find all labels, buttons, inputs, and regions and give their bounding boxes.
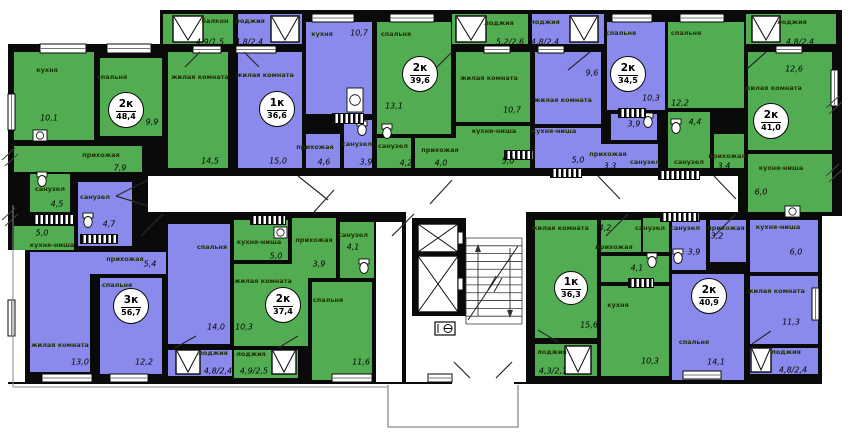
area-value: 4,2 — [599, 224, 612, 233]
corridor-area — [376, 222, 402, 382]
room-label: санузел — [674, 158, 704, 166]
room-label: жилая комната — [744, 84, 802, 92]
apartment-badge: 2к37,4 — [265, 287, 301, 323]
apartment-type: 2к — [699, 285, 719, 298]
apartment-badge: 2к34,5 — [610, 56, 646, 92]
vent-shaft-hatch — [32, 214, 74, 225]
room-label: спальня — [606, 29, 636, 37]
room-label: кухня-ниша — [532, 127, 577, 135]
room-label: кухня-ниша — [759, 164, 804, 172]
vent-shaft-hatch — [618, 108, 646, 118]
area-value: 6,0 — [755, 188, 768, 197]
apartment-area: 36,3 — [561, 290, 581, 300]
room — [168, 52, 228, 168]
area-value: 3,9 — [628, 120, 641, 129]
apartment-area: 40,9 — [699, 298, 719, 308]
apartment-badge: 1к36,6 — [259, 91, 295, 127]
room-label: лоджия — [198, 349, 228, 357]
apartment-area: 48,4 — [116, 112, 136, 122]
vent-shaft-hatch — [332, 113, 364, 124]
vent-shaft-hatch — [660, 212, 700, 222]
area-value: 13,0 — [71, 358, 89, 367]
apartment-type: 2к — [273, 294, 293, 307]
apartment-badge: 2к40,9 — [691, 278, 727, 314]
area-value: 14,0 — [207, 323, 225, 332]
room-label: лоджия — [537, 348, 567, 356]
room-label: кухня-ниша — [30, 241, 75, 249]
apartment-area: 34,5 — [618, 76, 638, 86]
apartment-type: 2к — [761, 110, 781, 123]
room-label: лоджия — [484, 19, 514, 27]
vent-shaft-hatch — [80, 234, 118, 244]
room-label: лоджия — [236, 350, 266, 358]
room-label: санузел — [338, 231, 368, 239]
area-value: 7,9 — [114, 164, 127, 173]
area-value: 4,4 — [689, 118, 702, 127]
room-label: спальня — [97, 73, 127, 81]
apartment-badge: 2к41,0 — [753, 103, 789, 139]
room-label: санузел — [670, 224, 700, 232]
area-value: 4,6 — [318, 158, 331, 167]
room-label: прихожая — [421, 146, 458, 154]
apartment-area: 36,6 — [267, 111, 287, 121]
area-value: 9,9 — [146, 118, 159, 127]
room-label: кухня-ниша — [472, 127, 517, 135]
corridor-area — [822, 216, 850, 384]
area-value: 3,9 — [360, 158, 373, 167]
vent-shaft-hatch — [628, 278, 654, 288]
room-label: лоджия — [771, 348, 801, 356]
area-value: 4,8/2,4 — [786, 38, 814, 47]
area-value: 5,0 — [270, 252, 283, 261]
room-label: балкон — [201, 17, 228, 25]
area-value: 4,8/2,4 — [235, 38, 263, 47]
area-value: 3,9 — [688, 248, 701, 257]
area-value: 10,3 — [641, 357, 659, 366]
room — [30, 252, 90, 372]
room-label: спальня — [671, 29, 701, 37]
apartment-type: 3к — [121, 295, 141, 308]
room-label: спальня — [313, 296, 343, 304]
area-value: 11,3 — [782, 318, 800, 327]
area-value: 3,3 — [604, 162, 617, 171]
area-value: 10,1 — [40, 114, 58, 123]
room-label: прихожая — [595, 243, 632, 251]
room-label: санузел — [342, 140, 372, 148]
area-value: 12,2 — [135, 358, 153, 367]
apartment-type: 2к — [410, 63, 430, 76]
area-value: 4,1 — [631, 264, 644, 273]
room-label: санузел — [630, 158, 660, 166]
area-value: 4,0 — [435, 159, 448, 168]
room-label: кухня — [311, 30, 333, 38]
room-label: кухня-ниша — [756, 223, 801, 231]
room-label: прихожая — [82, 151, 119, 159]
area-value: 4,9/2,5 — [240, 367, 268, 376]
room-label: кухня-ниша — [237, 238, 282, 246]
room-label: жилая комната — [234, 277, 292, 285]
area-value: 12,2 — [671, 99, 689, 108]
area-value: 4,3/2,1 — [539, 367, 567, 376]
room-label: кухня — [607, 301, 629, 309]
area-value: 5,4 — [144, 260, 157, 269]
apartment-area: 39,6 — [410, 76, 430, 86]
apartment-type: 2к — [116, 99, 136, 112]
area-value: 5,0 — [502, 157, 515, 166]
apartment-badge: 3к56,7 — [113, 288, 149, 324]
room-label: жилая комната — [460, 74, 518, 82]
area-value: 4,9/1,5 — [196, 38, 224, 47]
apartment-badge: 2к39,6 — [402, 56, 438, 92]
area-value: 5,0 — [572, 156, 585, 165]
corridor-area — [406, 212, 526, 382]
room-label: санузел — [35, 185, 65, 193]
corridor-area — [452, 372, 514, 384]
area-value: 3,2 — [711, 232, 724, 241]
room-label: лоджия — [235, 17, 265, 25]
room-label: жилая комната — [236, 71, 294, 79]
area-value: 15,6 — [580, 321, 598, 330]
room-label: прихожая — [708, 152, 745, 160]
vent-shaft-hatch — [658, 170, 700, 180]
room-label: прихожая — [106, 255, 143, 263]
room-label: спальня — [381, 30, 411, 38]
area-value: 10,7 — [350, 29, 368, 38]
area-value: 5,2/2,6 — [496, 38, 524, 47]
room — [535, 52, 601, 124]
vent-shaft-hatch — [550, 168, 582, 178]
area-value: 9,6 — [586, 69, 599, 78]
area-value: 3,9 — [313, 260, 326, 269]
area-value: 12,6 — [785, 65, 803, 74]
area-value: 10,3 — [235, 323, 253, 332]
room-label: жилая комната — [531, 224, 589, 232]
area-value: 4,7 — [103, 220, 116, 229]
apartment-type: 2к — [618, 63, 638, 76]
apartment-area: 37,4 — [273, 307, 293, 317]
area-value: 4,2 — [400, 159, 413, 168]
room-label: лоджия — [777, 18, 807, 26]
corridor-area — [148, 176, 738, 212]
area-value: 4,1 — [347, 243, 360, 252]
area-value: 3,4 — [718, 162, 731, 171]
room-label: жилая комната — [31, 341, 89, 349]
room-label: лоджия — [530, 18, 560, 26]
area-value: 10,3 — [642, 94, 660, 103]
vent-shaft-hatch — [250, 215, 286, 225]
corridor-area — [8, 250, 25, 382]
room-label: спальня — [197, 243, 227, 251]
room — [292, 218, 336, 278]
room-label: прихожая — [589, 150, 626, 158]
area-value: 4,8/2,4 — [531, 38, 559, 47]
room-label: жилая комната — [171, 73, 229, 81]
apartment-badge: 2к48,4 — [108, 92, 144, 128]
area-value: 10,7 — [503, 106, 521, 115]
room — [748, 154, 832, 212]
floor-plan: кухняспальняжилая комнатаприхожаясанузел… — [0, 0, 850, 433]
room-label: спальня — [679, 338, 709, 346]
room-label: санузел — [378, 142, 408, 150]
apartment-type: 1к — [561, 277, 581, 290]
apartment-badge: 1к36,3 — [554, 271, 588, 305]
room-label: прихожая — [296, 143, 333, 151]
area-value: 4,8/2,4 — [204, 367, 232, 376]
area-value: 4,5 — [51, 200, 64, 209]
room-label: жилая комната — [534, 96, 592, 104]
apartment-area: 41,0 — [761, 123, 781, 133]
area-value: 4,8/2,4 — [779, 366, 807, 375]
area-value: 13,1 — [385, 102, 403, 111]
area-value: 14,1 — [707, 358, 725, 367]
room-label: жилая комната — [747, 287, 805, 295]
area-value: 11,6 — [352, 358, 370, 367]
entrance-porch-outline — [388, 385, 518, 427]
apartment-area: 56,7 — [121, 308, 141, 318]
room-label: кухня — [36, 66, 58, 74]
area-value: 15,0 — [269, 157, 287, 166]
room-label: прихожая — [295, 236, 332, 244]
apartment-type: 1к — [267, 98, 287, 111]
room-label: санузел — [635, 224, 665, 232]
area-value: 5,0 — [36, 229, 49, 238]
area-value: 14,5 — [201, 157, 219, 166]
area-value: 6,0 — [790, 248, 803, 257]
room-label: санузел — [80, 193, 110, 201]
